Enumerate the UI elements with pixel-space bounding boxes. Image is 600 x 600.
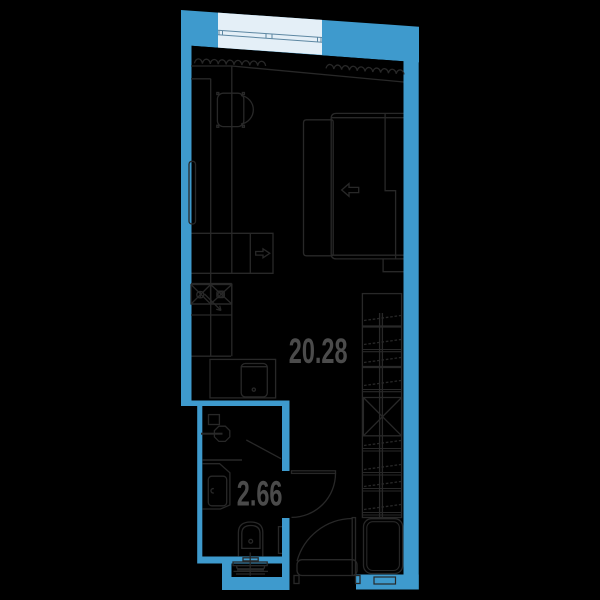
svg-text:20.28: 20.28 bbox=[289, 332, 348, 371]
svg-text:2.66: 2.66 bbox=[237, 475, 283, 514]
